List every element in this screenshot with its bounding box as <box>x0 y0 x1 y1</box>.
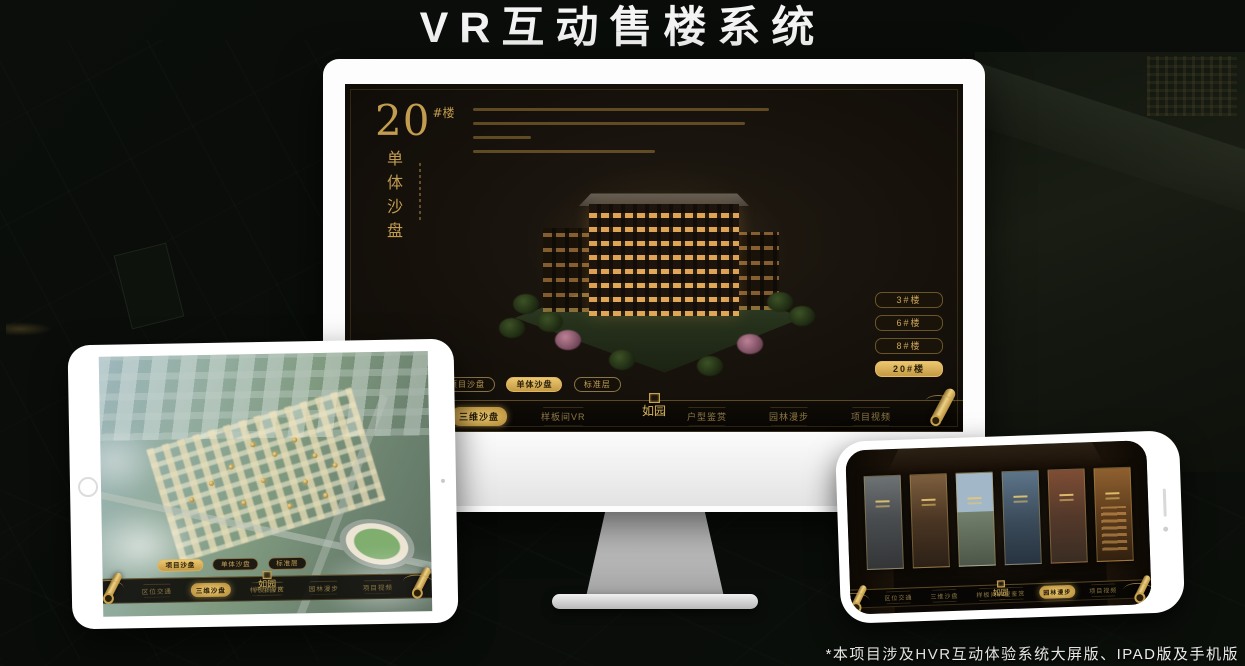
building-badge[interactable] <box>312 453 317 458</box>
camera-icon <box>1163 526 1168 531</box>
scene-card[interactable] <box>1047 468 1087 563</box>
nav-item-unit-plans[interactable]: 户型鉴赏 <box>993 586 1029 600</box>
tree <box>499 318 525 338</box>
background-logo-mark <box>6 322 52 336</box>
scene-card[interactable] <box>863 475 903 570</box>
floor-button-20[interactable]: 20#楼 <box>875 361 943 377</box>
building-badge[interactable] <box>189 497 194 502</box>
building-facade <box>589 204 739 316</box>
home-button[interactable] <box>78 477 98 497</box>
page-heading: 20#楼 单体沙盘 <box>375 100 455 246</box>
building-number: 20 <box>375 96 430 145</box>
seal-icon <box>263 571 272 579</box>
description-line <box>473 122 745 125</box>
scene-card[interactable] <box>955 472 995 567</box>
building-badge[interactable] <box>272 452 277 457</box>
building-3d-render[interactable] <box>491 146 827 390</box>
monitor-stand-base <box>552 594 758 609</box>
nav-item-showroom-vr[interactable]: 样板间VR <box>533 407 594 426</box>
scroll-icon[interactable] <box>930 387 958 426</box>
tree <box>789 306 815 326</box>
tab-project-sandbox[interactable]: 项目沙盘 <box>157 559 203 572</box>
tablet-screen: 项目沙盘 单体沙盘 标准层 区位交通 三维沙盘 样板间VR 如园 户型鉴赏 园林… <box>99 351 432 617</box>
scene-card[interactable] <box>1001 470 1041 565</box>
building-badge[interactable] <box>229 465 234 470</box>
camera-icon <box>441 479 445 483</box>
building-badge[interactable] <box>287 503 292 508</box>
nav-item-unit-plans[interactable]: 户型鉴赏 <box>679 407 735 426</box>
nav-item-garden-walk[interactable]: 园林漫步 <box>1039 585 1075 599</box>
building-badge[interactable] <box>323 493 328 498</box>
tree <box>767 292 793 312</box>
seal-icon <box>648 393 659 403</box>
brand-logo: 如园 <box>642 393 666 417</box>
scene-card[interactable] <box>909 473 949 568</box>
nav-item-location[interactable]: 区位交通 <box>880 590 916 604</box>
tab-single-sandbox[interactable]: 单体沙盘 <box>213 558 259 571</box>
floor-button-8[interactable]: 8#楼 <box>875 338 943 354</box>
nav-item-3d-sandbox[interactable]: 三维沙盘 <box>451 407 507 426</box>
brand-logo-text: 如园 <box>642 405 666 417</box>
building-badge[interactable] <box>292 437 297 442</box>
building-badge[interactable] <box>261 478 266 483</box>
nav-item-project-video[interactable]: 项目视频 <box>358 579 398 594</box>
nav-item-project-video[interactable]: 项目视频 <box>1085 583 1121 597</box>
nav-item-garden-walk[interactable]: 园林漫步 <box>761 407 817 426</box>
scene-card[interactable] <box>1093 467 1133 562</box>
tree <box>537 312 563 332</box>
phone-screen: 区位交通 三维沙盘 样板间VR 如园 户型鉴赏 园林漫步 项目视频 <box>845 440 1152 614</box>
tree <box>697 356 723 376</box>
tab-single-sandbox[interactable]: 单体沙盘 <box>506 377 562 392</box>
page: VR互动售楼系统 20#楼 单体沙盘 <box>0 0 1245 666</box>
blossom-tree <box>737 334 763 354</box>
nav-item-location[interactable]: 区位交通 <box>137 583 177 598</box>
nav-item-3d-sandbox[interactable]: 三维沙盘 <box>926 589 962 603</box>
nav-item-project-video[interactable]: 项目视频 <box>843 407 899 426</box>
description-line <box>473 136 531 139</box>
phone-device: 区位交通 三维沙盘 样板间VR 如园 户型鉴赏 园林漫步 项目视频 <box>835 430 1185 624</box>
nav-item-unit-plans[interactable]: 户型鉴赏 <box>250 581 290 596</box>
building-badge[interactable] <box>209 481 214 486</box>
tree <box>513 294 539 314</box>
monitor-stand-neck <box>586 511 724 597</box>
tablet-view-tabs: 项目沙盘 单体沙盘 标准层 <box>157 554 312 571</box>
building-badge[interactable] <box>250 442 255 447</box>
tab-standard-floor[interactable]: 标准层 <box>268 557 307 570</box>
page-title: VR互动售楼系统 <box>0 0 1245 56</box>
blossom-tree <box>555 330 581 350</box>
view-tabs: 项目沙盘 单体沙盘 标准层 <box>439 374 628 392</box>
building-badge[interactable] <box>303 479 308 484</box>
building-number-suffix: #楼 <box>432 106 454 120</box>
floor-button-6[interactable]: 6#楼 <box>875 315 943 331</box>
vertical-english-caption <box>419 162 421 220</box>
nav-item-garden-walk[interactable]: 园林漫步 <box>304 580 344 595</box>
floor-selector: 3#楼 6#楼 8#楼 20#楼 <box>875 292 943 377</box>
scene-card-gallery <box>863 467 1133 570</box>
tablet-device: 项目沙盘 单体沙盘 标准层 区位交通 三维沙盘 样板间VR 如园 户型鉴赏 园林… <box>68 339 459 630</box>
speaker-icon <box>1163 489 1167 517</box>
footnote: *本项目涉及HVR互动体验系统大屏版、IPAD版及手机版 <box>826 643 1239 664</box>
building-badge[interactable] <box>241 500 246 505</box>
background-aerial-photo <box>975 52 1245 472</box>
floor-button-3[interactable]: 3#楼 <box>875 292 943 308</box>
building-badge[interactable] <box>333 463 338 468</box>
phone-bottom-nav: 区位交通 三维沙盘 样板间VR 如园 户型鉴赏 园林漫步 项目视频 <box>850 579 1151 608</box>
description-line <box>473 108 769 111</box>
tree <box>609 350 635 370</box>
tab-standard-floor[interactable]: 标准层 <box>574 377 621 392</box>
nav-item-3d-sandbox[interactable]: 三维沙盘 <box>191 582 231 597</box>
page-subtitle: 单体沙盘 <box>381 150 405 246</box>
